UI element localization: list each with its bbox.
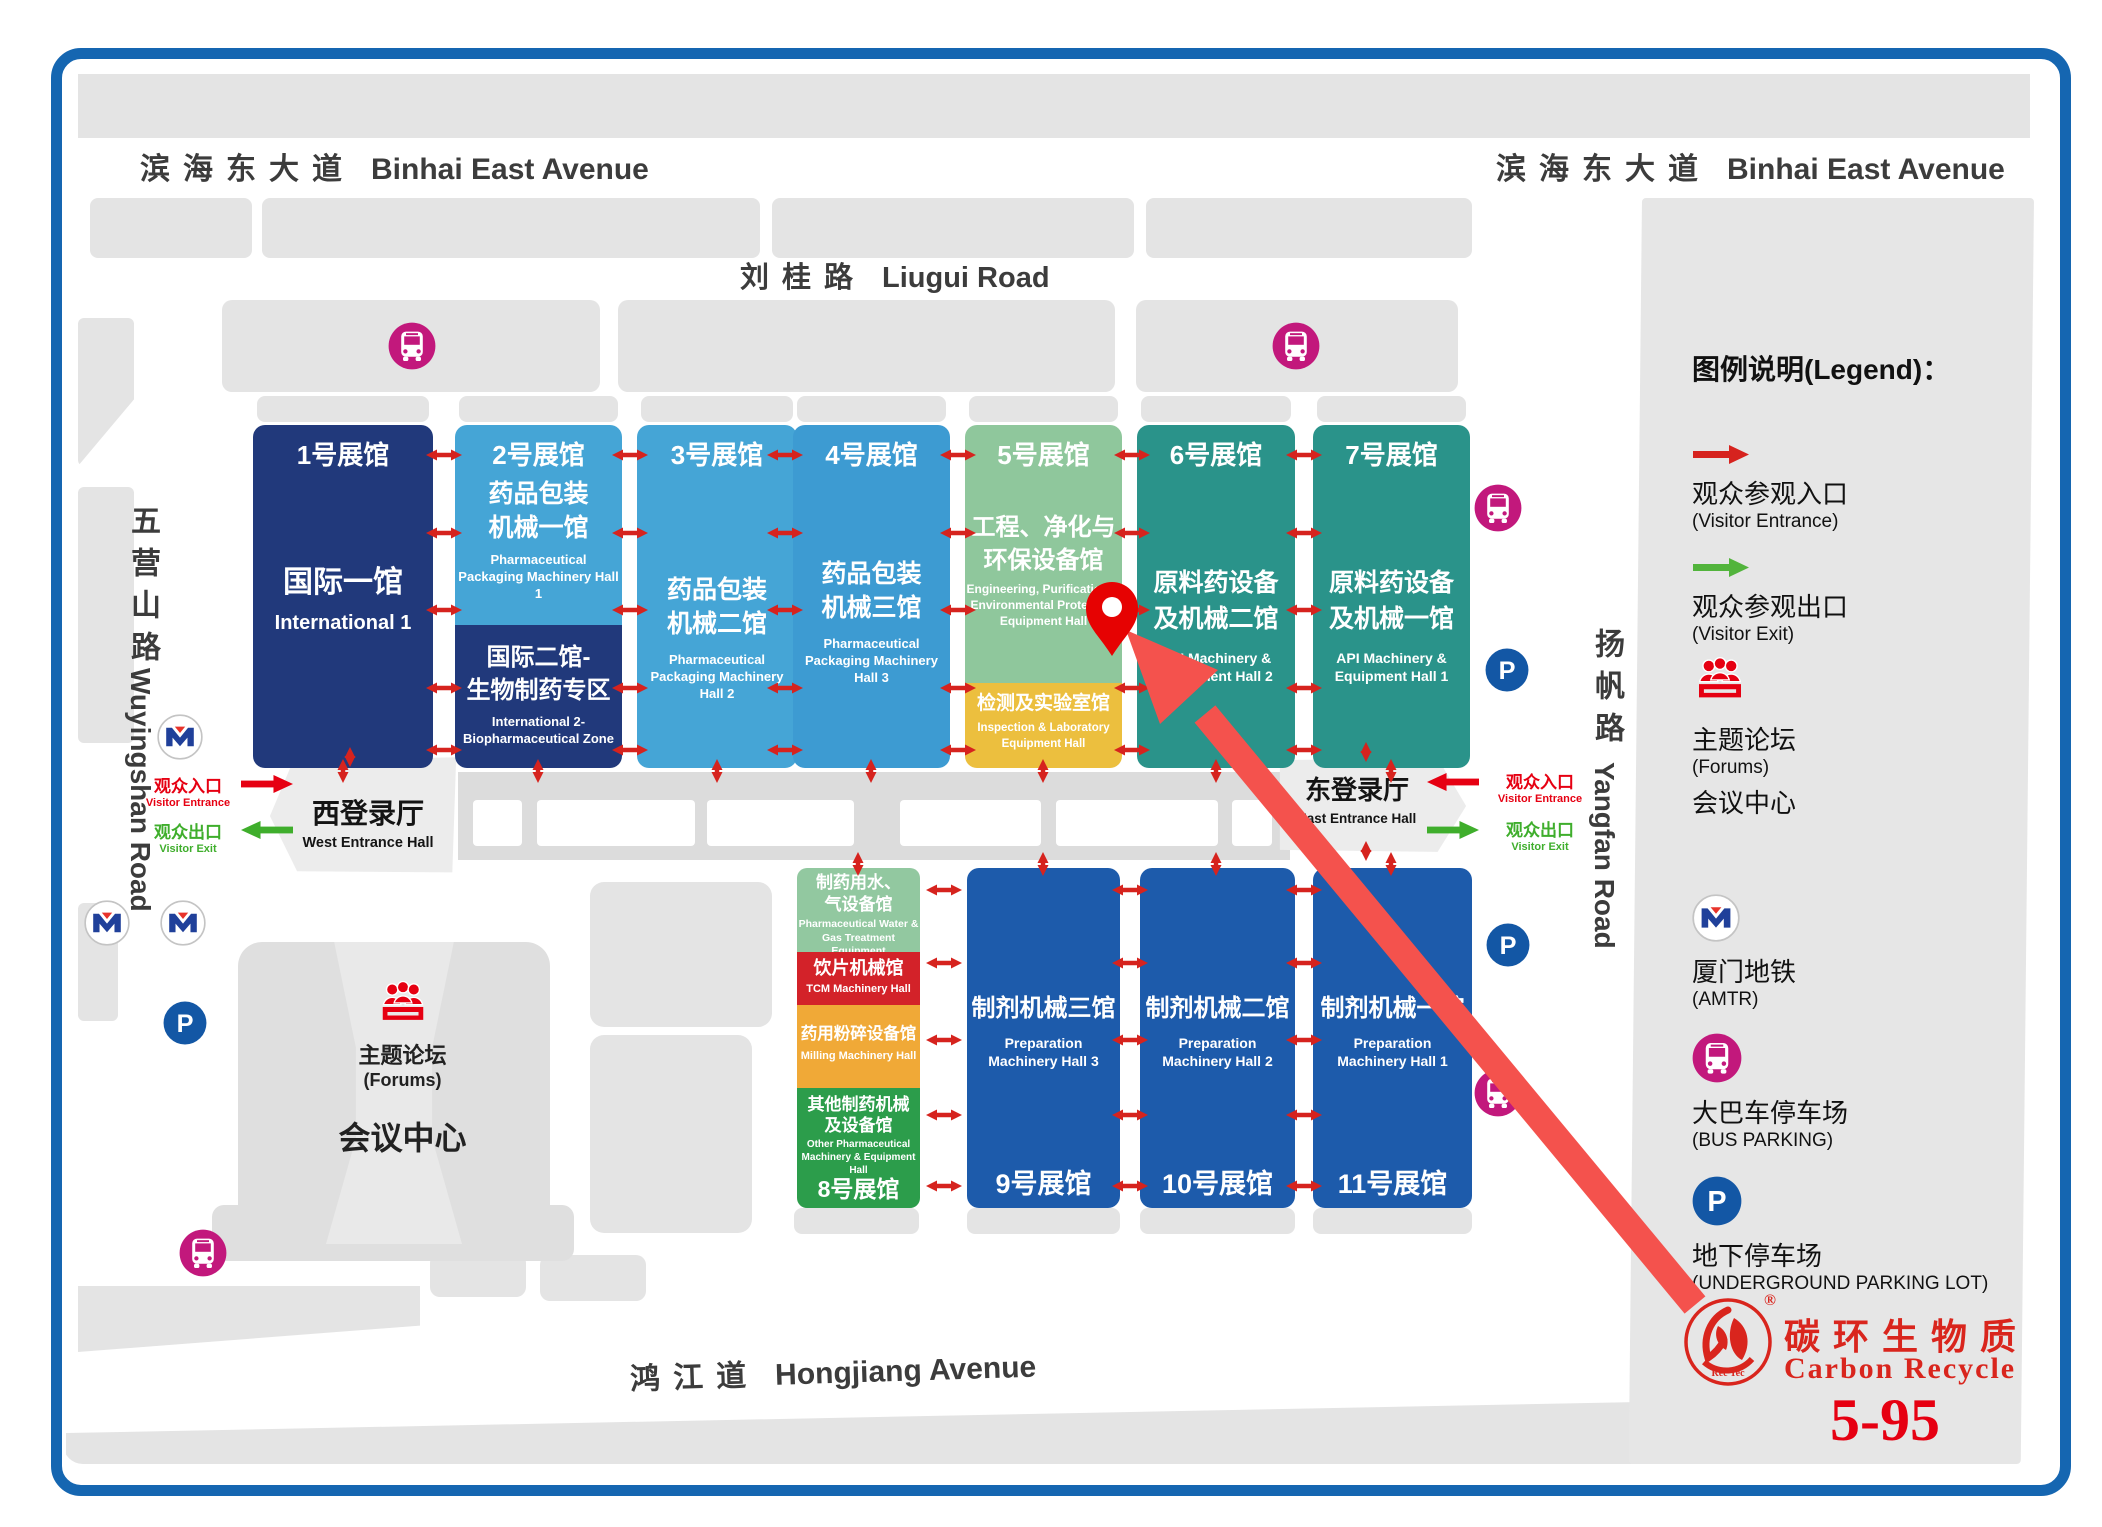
hall-name-en: TCM Machinery Hall bbox=[797, 982, 920, 996]
corridor-arrow-icon bbox=[1285, 1178, 1323, 1194]
hall-name-cn: 制剂机械三馆 bbox=[967, 994, 1120, 1024]
legend-item: 厦门地铁(AMTR) bbox=[1692, 894, 2027, 1011]
hall-5: 5号展馆工程、净化与环保设备馆Engineering, Purification… bbox=[965, 425, 1122, 683]
metro-icon bbox=[157, 714, 203, 760]
corridor-arrow-icon bbox=[1285, 1107, 1323, 1123]
hall-name-en: International 2-Biopharmaceutical Zone bbox=[455, 713, 622, 747]
corridor-arrow-icon bbox=[1285, 525, 1323, 541]
svg-text:P: P bbox=[1499, 657, 1516, 685]
corridor-arrow-icon bbox=[1111, 1178, 1149, 1194]
brand-logo-text: Rec Tec bbox=[1711, 1368, 1745, 1379]
legend-item: 大巴车停车场(BUS PARKING) bbox=[1692, 1033, 2027, 1152]
underground-parking-icon: P bbox=[1692, 1176, 2027, 1226]
booth-number: 5-95 bbox=[1800, 1386, 1970, 1455]
hall-name-en: API Machinery &Equipment Hall 2 bbox=[1137, 649, 1295, 685]
hall-number-label: 7号展馆 bbox=[1313, 435, 1470, 472]
corridor-arrow-icon bbox=[1383, 758, 1399, 784]
svg-text:P: P bbox=[177, 1010, 194, 1038]
underground-parking-icon: P bbox=[1485, 648, 1529, 692]
corridor-arrow-icon bbox=[1111, 882, 1149, 898]
bus-parking-icon bbox=[1692, 1033, 2027, 1083]
hall-10: 制剂机械二馆PreparationMachinery Hall 210号展馆 bbox=[1140, 868, 1295, 1208]
building-block bbox=[641, 396, 793, 422]
hall-name-cn: 原料药设备及机械二馆 bbox=[1137, 565, 1295, 637]
corridor-arrow-icon bbox=[939, 447, 977, 463]
building-block bbox=[1140, 1208, 1295, 1234]
underground-parking-icon: P bbox=[163, 1001, 207, 1045]
hall-name-en: API Machinery &Equipment Hall 1 bbox=[1313, 649, 1470, 685]
brand-logo: Rec Tec bbox=[1682, 1296, 1774, 1388]
corridor-arrow-icon bbox=[766, 447, 804, 463]
hall-11: 制剂机械一馆PreparationMachinery Hall 111号展馆 bbox=[1313, 868, 1472, 1208]
building-block bbox=[1313, 1208, 1472, 1234]
corridor-room bbox=[537, 800, 695, 846]
corridor-arrow-icon bbox=[1285, 742, 1323, 758]
building-block bbox=[797, 396, 946, 422]
corridor-arrow-icon bbox=[425, 602, 463, 618]
hall-8-section-3: 药用粉碎设备馆Milling Machinery Hall bbox=[797, 1005, 920, 1088]
corridor-arrow-icon bbox=[766, 742, 804, 758]
corridor-arrow-icon bbox=[1113, 447, 1151, 463]
hall-name-cn: 药用粉碎设备馆 bbox=[797, 1023, 920, 1045]
hall-name-en: International 1 bbox=[253, 611, 433, 635]
visitor-entrance-arrow-icon bbox=[1692, 444, 2027, 464]
hall-8-section-2: 饮片机械馆TCM Machinery Hall bbox=[797, 952, 920, 1005]
brand-mark: ® bbox=[1764, 1292, 1776, 1310]
corridor-arrow-icon bbox=[1113, 602, 1151, 618]
corridor-arrow-icon bbox=[1285, 955, 1323, 971]
metro-icon bbox=[84, 900, 130, 946]
metro-icon bbox=[1692, 894, 2027, 942]
bus-parking-icon bbox=[1272, 322, 1320, 370]
corridor-room bbox=[473, 800, 522, 846]
building-block bbox=[78, 74, 2030, 138]
legend-item: 观众参观出口(Visitor Exit) bbox=[1692, 557, 2027, 646]
hall-number-label: 5号展馆 bbox=[965, 435, 1122, 472]
corridor-room bbox=[1232, 800, 1272, 846]
corridor-arrow-icon bbox=[939, 602, 977, 618]
hall-name-cn: 国际一馆 bbox=[253, 563, 433, 603]
forum-label-en: (Forums) bbox=[330, 1070, 475, 1091]
legend-title: 图例说明(Legend)： bbox=[1692, 348, 2027, 388]
corridor-arrow-icon bbox=[1285, 882, 1323, 898]
road-label-hongjiang: 鸿江道Hongjiang Avenue bbox=[629, 1342, 1036, 1399]
road-label-liugui: 刘桂路Liugui Road bbox=[740, 254, 1050, 296]
svg-text:P: P bbox=[1707, 1186, 1726, 1218]
forum-icon bbox=[1692, 654, 2027, 710]
hall-9: 制剂机械三馆PreparationMachinery Hall 39号展馆 bbox=[967, 868, 1120, 1208]
hall-number-label: 1号展馆 bbox=[253, 435, 433, 472]
building-block bbox=[78, 318, 134, 466]
hall-number-label: 4号展馆 bbox=[793, 435, 950, 472]
hall-name-en: Milling Machinery Hall bbox=[797, 1049, 920, 1063]
corridor-arrow-icon bbox=[766, 525, 804, 541]
building-block bbox=[262, 198, 760, 258]
corridor-arrow-icon bbox=[925, 1178, 963, 1194]
corridor-arrow-icon bbox=[1358, 741, 1374, 763]
hall-number-label: 9号展馆 bbox=[967, 1162, 1120, 1201]
visitor-entrance-arrow-icon bbox=[240, 774, 294, 794]
hall-1: 1号展馆国际一馆International 1 bbox=[253, 425, 433, 768]
underground-parking-icon: P bbox=[1486, 923, 1530, 967]
building-block bbox=[78, 1286, 420, 1352]
forum-label-cn: 主题论坛 bbox=[330, 1038, 475, 1070]
building-block bbox=[257, 396, 429, 422]
hall-name-cn: 原料药设备及机械一馆 bbox=[1313, 565, 1470, 637]
hall-name-en: PreparationMachinery Hall 1 bbox=[1313, 1034, 1472, 1070]
hall-name-en: PharmaceuticalPackaging Machinery Hall 3 bbox=[793, 635, 950, 686]
hall-number-label: 2号展馆 bbox=[455, 435, 622, 472]
legend-panel: 图例说明(Legend)： 观众参观入口(Visitor Entrance)观众… bbox=[1692, 348, 2027, 1295]
road-label-yangfan-en: Yangfan Road bbox=[1588, 762, 1620, 949]
corridor-arrow-icon bbox=[611, 602, 649, 618]
corridor-room bbox=[1056, 800, 1218, 846]
metro-icon bbox=[160, 900, 206, 946]
hall-name-en: Inspection & LaboratoryEquipment Hall bbox=[965, 721, 1122, 752]
visitor-gate-label: 观众入口Visitor Entrance bbox=[142, 772, 234, 809]
hall-number-label: 6号展馆 bbox=[1137, 435, 1295, 472]
building-block bbox=[90, 198, 252, 258]
hall-number-label: 8号展馆 bbox=[797, 1170, 920, 1204]
expo-map-page: 滨海东大道Binhai East Avenue 滨海东大道Binhai East… bbox=[0, 0, 2102, 1527]
corridor-arrow-icon bbox=[611, 525, 649, 541]
legend-item: P地下停车场(UNDERGROUND PARKING LOT) bbox=[1692, 1176, 2027, 1295]
hall-name-cn: 工程、净化与环保设备馆 bbox=[965, 511, 1122, 577]
hall-3: 3号展馆药品包装机械二馆PharmaceuticalPackaging Mach… bbox=[637, 425, 797, 768]
corridor-arrow-icon bbox=[1113, 680, 1151, 696]
east-entrance-hall-label: 东登录厅 East Entrance Hall bbox=[1282, 770, 1432, 826]
road-label-binhai-east: 滨海东大道Binhai East Avenue bbox=[1496, 144, 2005, 188]
building-block bbox=[590, 1035, 752, 1233]
corridor-arrow-icon bbox=[425, 447, 463, 463]
visitor-gate-label: 观众出口Visitor Exit bbox=[142, 818, 234, 855]
hall-name-cn: 饮片机械馆 bbox=[797, 957, 920, 979]
corridor-room bbox=[900, 800, 1041, 846]
corridor-arrow-icon bbox=[611, 680, 649, 696]
corridor-arrow-icon bbox=[925, 955, 963, 971]
hall-name-en: PharmaceuticalPackaging Machinery Hall 1 bbox=[455, 551, 622, 602]
corridor-arrow-icon bbox=[925, 1107, 963, 1123]
building-block bbox=[540, 1255, 646, 1301]
corridor-arrow-icon bbox=[709, 758, 725, 784]
hall-8-section-1: 制药用水、气设备馆Pharmaceutical Water &Gas Treat… bbox=[797, 868, 920, 952]
building-block bbox=[794, 1208, 919, 1234]
corridor-arrow-icon bbox=[925, 1032, 963, 1048]
hall-name-cn: 制剂机械二馆 bbox=[1140, 994, 1295, 1024]
bus-parking-icon bbox=[179, 1229, 227, 1277]
building-block bbox=[66, 1392, 1646, 1464]
visitor-entrance-arrow-icon bbox=[1426, 772, 1480, 792]
corridor-arrow-icon bbox=[1383, 851, 1399, 877]
corridor-arrow-icon bbox=[1113, 525, 1151, 541]
corridor-arrow-icon bbox=[925, 882, 963, 898]
hall-7: 7号展馆原料药设备及机械一馆API Machinery &Equipment H… bbox=[1313, 425, 1470, 768]
corridor-arrow-icon bbox=[1035, 758, 1051, 784]
legend-item: 观众参观入口(Visitor Entrance) bbox=[1692, 444, 2027, 533]
hall-name-cn: 其他制药机械及设备馆 bbox=[797, 1094, 920, 1136]
hall-name-en: PreparationMachinery Hall 2 bbox=[1140, 1034, 1295, 1070]
building-block bbox=[1141, 396, 1291, 422]
hall-name-en: PreparationMachinery Hall 3 bbox=[967, 1034, 1120, 1070]
legend-item: 主题论坛(Forums)会议中心 bbox=[1692, 654, 2027, 820]
building-block bbox=[1317, 396, 1466, 422]
hall-name-cn: 国际二馆-生物制药专区 bbox=[455, 641, 622, 707]
visitor-gate-label: 观众入口Visitor Entrance bbox=[1490, 768, 1590, 805]
visitor-exit-arrow-icon bbox=[240, 820, 294, 840]
corridor-arrow-icon bbox=[766, 680, 804, 696]
building-block bbox=[772, 198, 1134, 258]
bus-parking-icon bbox=[388, 322, 436, 370]
corridor-arrow-icon bbox=[1035, 851, 1051, 877]
corridor-arrow-icon bbox=[766, 602, 804, 618]
hall-name-cn: 制药用水、气设备馆 bbox=[797, 872, 920, 916]
hall-6: 6号展馆原料药设备及机械二馆API Machinery &Equipment H… bbox=[1137, 425, 1295, 768]
svg-text:P: P bbox=[1500, 932, 1517, 960]
corridor-arrow-icon bbox=[939, 680, 977, 696]
forum-icon bbox=[330, 978, 475, 1032]
corridor-arrow-icon bbox=[1285, 1032, 1323, 1048]
hall-number-label: 10号展馆 bbox=[1140, 1162, 1295, 1201]
building-block bbox=[969, 396, 1118, 422]
hall-name-cn: 药品包装机械一馆 bbox=[455, 477, 622, 545]
visitor-gate-label: 观众出口Visitor Exit bbox=[1490, 816, 1590, 853]
building-block bbox=[967, 1208, 1120, 1234]
corridor-arrow-icon bbox=[1285, 602, 1323, 618]
corridor-arrow-icon bbox=[1358, 840, 1374, 862]
corridor-arrow-icon bbox=[1113, 742, 1151, 758]
corridor-arrow-icon bbox=[1285, 447, 1323, 463]
corridor-arrow-icon bbox=[1208, 851, 1224, 877]
conference-center-label: 主题论坛(Forums)会议中心 bbox=[330, 978, 475, 1159]
corridor-arrow-icon bbox=[530, 758, 546, 784]
hall-2-sub: 国际二馆-生物制药专区International 2-Biopharmaceut… bbox=[455, 625, 622, 768]
building-block bbox=[618, 300, 1115, 392]
road-label-binhai-west: 滨海东大道Binhai East Avenue bbox=[140, 144, 649, 188]
building-block bbox=[590, 882, 772, 1027]
corridor-arrow-icon bbox=[1111, 1032, 1149, 1048]
corridor-arrow-icon bbox=[1111, 1107, 1149, 1123]
corridor-room bbox=[707, 800, 854, 846]
building-block bbox=[459, 396, 618, 422]
hall-name-cn: 检测及实验室馆 bbox=[965, 691, 1122, 717]
road-label-wuyingshan-cn: 五营山路 bbox=[120, 505, 164, 673]
west-entrance-hall-label: 西登录厅 West Entrance Hall bbox=[288, 792, 448, 851]
bus-parking-icon bbox=[1474, 484, 1522, 532]
corridor-arrow-icon bbox=[611, 742, 649, 758]
hall-number-label: 11号展馆 bbox=[1313, 1162, 1472, 1201]
hall-name-cn: 药品包装机械三馆 bbox=[793, 557, 950, 625]
map-canvas: 滨海东大道Binhai East Avenue 滨海东大道Binhai East… bbox=[63, 60, 2037, 1464]
road-binhai-en: Binhai East Avenue bbox=[371, 153, 649, 186]
visitor-exit-arrow-icon bbox=[1426, 820, 1480, 840]
road-label-yangfan-cn: 扬帆路 bbox=[1584, 628, 1628, 754]
hall-4: 4号展馆药品包装机械三馆PharmaceuticalPackaging Mach… bbox=[793, 425, 950, 768]
corridor-arrow-icon bbox=[1285, 680, 1323, 696]
corridor-arrow-icon bbox=[863, 758, 879, 784]
carbon-recycle-logo-icon: Rec Tec bbox=[1682, 1296, 1774, 1388]
corridor-arrow-icon bbox=[611, 447, 649, 463]
hall-2: 2号展馆药品包装机械一馆PharmaceuticalPackaging Mach… bbox=[455, 425, 622, 625]
corridor-arrow-icon bbox=[425, 525, 463, 541]
corridor-arrow-icon bbox=[939, 525, 977, 541]
corridor-arrow-icon bbox=[1111, 955, 1149, 971]
hall-8-section-4: 其他制药机械及设备馆Other PharmaceuticalMachinery … bbox=[797, 1088, 920, 1208]
hall-name-en: Engineering, Purification &Environmental… bbox=[965, 581, 1122, 629]
road-binhai-cn: 滨海东大道 bbox=[140, 153, 355, 186]
hall-name-cn: 制剂机械一馆 bbox=[1313, 994, 1472, 1024]
corridor-arrow-icon bbox=[939, 742, 977, 758]
corridor-arrow-icon bbox=[850, 851, 866, 877]
corridor-arrow-icon bbox=[1208, 758, 1224, 784]
visitor-exit-arrow-icon bbox=[1692, 557, 2027, 577]
hall-5-sub: 检测及实验室馆Inspection & LaboratoryEquipment … bbox=[965, 683, 1122, 768]
corridor-arrow-icon bbox=[425, 680, 463, 696]
corridor-arrow-icon bbox=[342, 746, 358, 768]
brand-name-en: Carbon Recycle bbox=[1784, 1352, 2016, 1386]
conference-center-cn: 会议中心 bbox=[330, 1113, 475, 1159]
bus-parking-icon bbox=[1474, 1069, 1522, 1117]
building-block bbox=[1146, 198, 1472, 258]
corridor-arrow-icon bbox=[425, 742, 463, 758]
